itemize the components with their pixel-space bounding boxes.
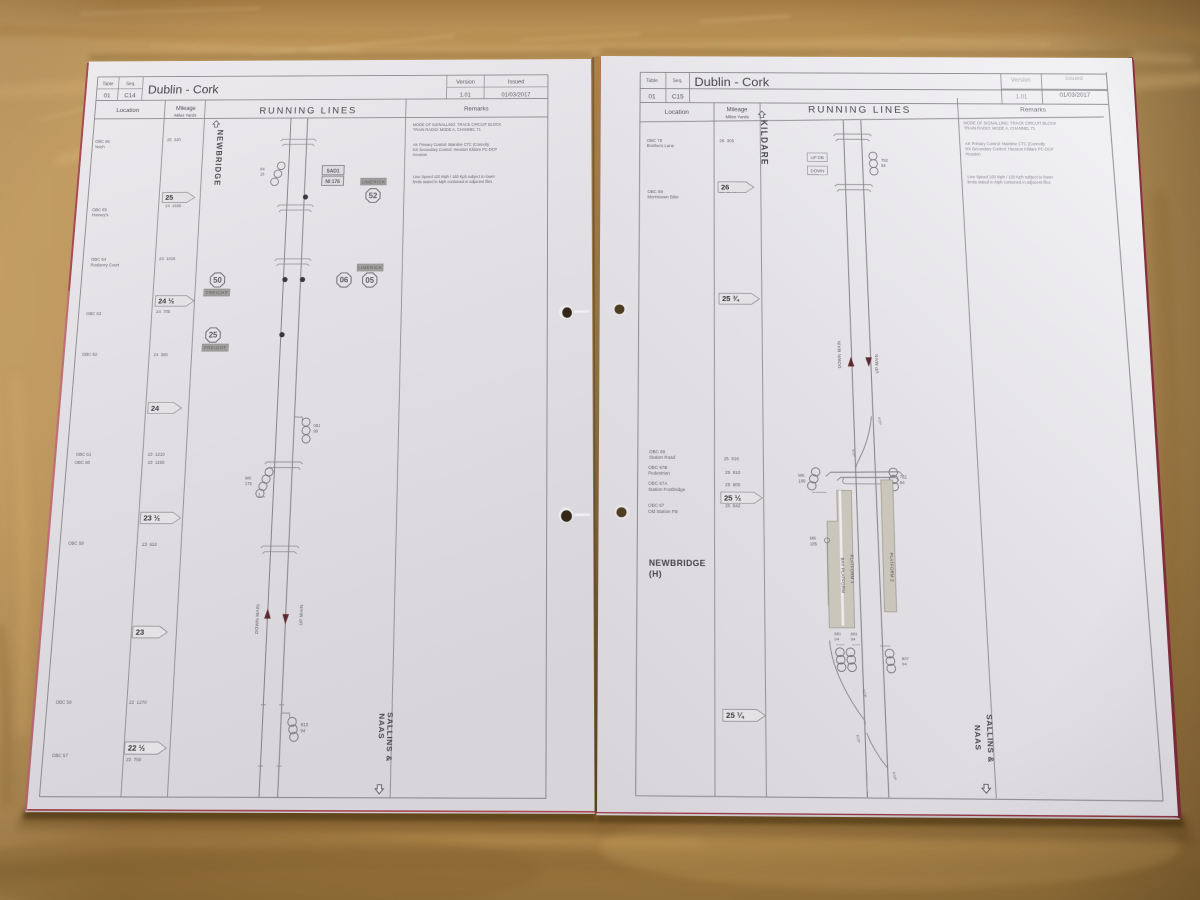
- svg-text:Remarks: Remarks: [464, 106, 489, 112]
- svg-text:94: 94: [300, 729, 305, 734]
- svg-text:Version: Version: [456, 80, 475, 86]
- svg-text:FREIGHT: FREIGHT: [204, 345, 227, 350]
- svg-text:24 705: 24 705: [156, 309, 171, 314]
- svg-text:24 ½: 24 ½: [158, 297, 175, 306]
- svg-text:Mileage: Mileage: [176, 106, 196, 112]
- svg-text:01/03/2017: 01/03/2017: [501, 92, 530, 98]
- svg-text:OBC 61: OBC 61: [76, 451, 92, 457]
- svg-text:25: 25: [165, 195, 174, 202]
- svg-text:SALLINS &: SALLINS &: [384, 712, 393, 762]
- svg-text:Location: Location: [116, 108, 139, 114]
- svg-text:813: 813: [301, 723, 308, 728]
- svg-text:AK Primary Control: Mainline C: AK Primary Control: Mainline CTC (Connol…: [413, 143, 489, 147]
- svg-text:SAD1: SAD1: [326, 168, 340, 173]
- svg-text:24 390: 24 390: [153, 352, 168, 357]
- svg-text:24: 24: [151, 405, 160, 413]
- svg-text:175: 175: [245, 482, 252, 487]
- svg-text:LIMERICK: LIMERICK: [358, 265, 382, 270]
- svg-text:Heuston: Heuston: [413, 153, 428, 157]
- svg-text:FREIGHT: FREIGHT: [206, 290, 229, 295]
- svg-text:1.01: 1.01: [460, 93, 471, 99]
- svg-text:Rosberry Court: Rosberry Court: [91, 262, 121, 267]
- svg-text:22 750: 22 750: [126, 756, 143, 762]
- svg-text:UP MAIN: UP MAIN: [298, 605, 305, 626]
- svg-text:25: 25: [208, 330, 217, 340]
- svg-text:Hussey's: Hussey's: [91, 212, 108, 217]
- svg-text:23 610: 23 610: [142, 541, 158, 547]
- svg-text:OBC 58: OBC 58: [55, 699, 72, 705]
- svg-text:23 1190: 23 1190: [148, 460, 166, 466]
- svg-text:23: 23: [135, 629, 144, 637]
- svg-text:84: 84: [260, 167, 265, 171]
- svg-text:limits stated in Mph contained: limits stated in Mph contained in adjace…: [413, 180, 493, 184]
- svg-text:LIMERICK: LIMERICK: [362, 179, 386, 184]
- svg-text:MODE OF SIGNALLING: TRACK CIRC: MODE OF SIGNALLING: TRACK CIRCUIT BLOCK: [413, 123, 502, 127]
- svg-text:C14: C14: [124, 93, 136, 99]
- svg-text:06: 06: [340, 275, 349, 285]
- svg-text:TRAIN RADIO: MODE A, CHANNEL 7: TRAIN RADIO: MODE A, CHANNEL 71: [413, 128, 481, 132]
- svg-text:Issued: Issued: [508, 79, 525, 85]
- svg-text:22 1270: 22 1270: [129, 699, 148, 705]
- svg-text:52: 52: [369, 191, 378, 200]
- svg-text:061: 061: [313, 424, 320, 428]
- svg-text:NI 176: NI 176: [325, 179, 340, 184]
- svg-text:16: 16: [260, 172, 265, 176]
- svg-text:OBC 57: OBC 57: [52, 752, 69, 758]
- svg-text:23 1210: 23 1210: [148, 452, 166, 458]
- svg-text:OBC 62: OBC 62: [82, 352, 98, 357]
- svg-text:50: 50: [213, 275, 222, 285]
- svg-text:Line Speed 100 Mph / 160 Kph s: Line Speed 100 Mph / 160 Kph subject to …: [413, 175, 496, 179]
- svg-text:Yeich: Yeich: [94, 144, 104, 149]
- svg-text:MK: MK: [245, 476, 252, 481]
- svg-text:RUNNING LINES: RUNNING LINES: [259, 105, 357, 115]
- svg-text:Seq.: Seq.: [126, 81, 136, 86]
- svg-text:Miles Yards: Miles Yards: [174, 113, 196, 118]
- svg-text:NAAS: NAAS: [376, 713, 385, 739]
- svg-text:24 1665: 24 1665: [165, 203, 182, 208]
- svg-text:Table: Table: [102, 81, 114, 86]
- svg-text:01: 01: [103, 93, 110, 99]
- svg-text:OBC 60: OBC 60: [74, 460, 91, 466]
- svg-text:22 ½: 22 ½: [128, 744, 146, 754]
- svg-text:99: 99: [313, 429, 318, 433]
- svg-text:NX Secondary Control: Heuston: NX Secondary Control: Heuston Kildare PC…: [413, 148, 498, 152]
- svg-text:05: 05: [365, 275, 374, 285]
- svg-text:OBC 63: OBC 63: [86, 311, 102, 316]
- svg-text:25 320: 25 320: [167, 137, 182, 142]
- svg-text:OBC 59: OBC 59: [68, 540, 85, 546]
- svg-text:24 1015: 24 1015: [159, 256, 177, 261]
- svg-text:23 ½: 23 ½: [143, 514, 161, 523]
- svg-text:Dublin - Cork: Dublin - Cork: [147, 83, 219, 96]
